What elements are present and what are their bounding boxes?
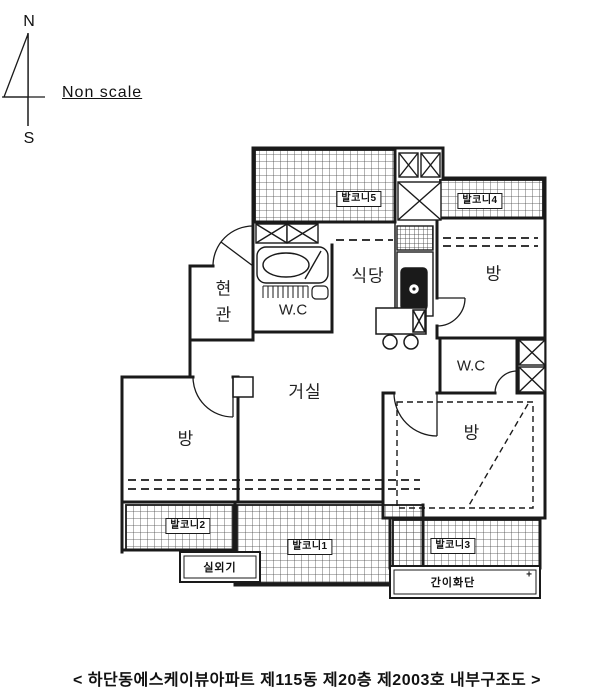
kitchen-counter <box>397 226 433 316</box>
toilet <box>312 286 328 299</box>
entrance-label: 현관 <box>214 277 234 330</box>
balcony3-label: 발코니3 <box>430 538 475 554</box>
bathroom-vanity <box>263 286 308 298</box>
room-bottom-right-label: 방 <box>464 419 481 444</box>
floorplan-page: { "colors": { "ink": "#1a1a1a", "paper":… <box>0 0 607 700</box>
balcony4-label: 발코니4 <box>457 193 502 209</box>
scale-note: Non scale <box>62 84 142 102</box>
door-arcs <box>193 226 517 436</box>
wc-top-label: W.C <box>279 302 307 319</box>
bathtub <box>257 247 328 283</box>
room-left-label: 방 <box>178 425 195 450</box>
room-top-right-label: 방 <box>486 260 503 285</box>
dining-label: 식당 <box>351 262 384 287</box>
flower-bed-marker: + <box>526 570 532 581</box>
balcony5-label: 발코니5 <box>336 191 381 207</box>
balcony2-label: 발코니2 <box>165 518 210 534</box>
drawing-caption: < 하단동에스케이뷰아파트 제115동 제20층 제2003호 내부구조도 > <box>73 666 541 690</box>
floorplan-drawing <box>0 0 607 700</box>
compass-icon <box>2 33 45 126</box>
outdoor-unit-label: 실외기 <box>203 559 236 575</box>
living-label: 거실 <box>288 378 321 403</box>
compass-north-label: N <box>23 13 35 31</box>
balcony1-label: 발코니1 <box>287 539 332 555</box>
flower-bed-label: 간이화단 <box>431 574 475 590</box>
wc-right-label: W.C <box>457 358 485 375</box>
kitchen-cart <box>376 308 426 349</box>
compass-south-label: S <box>24 130 35 148</box>
